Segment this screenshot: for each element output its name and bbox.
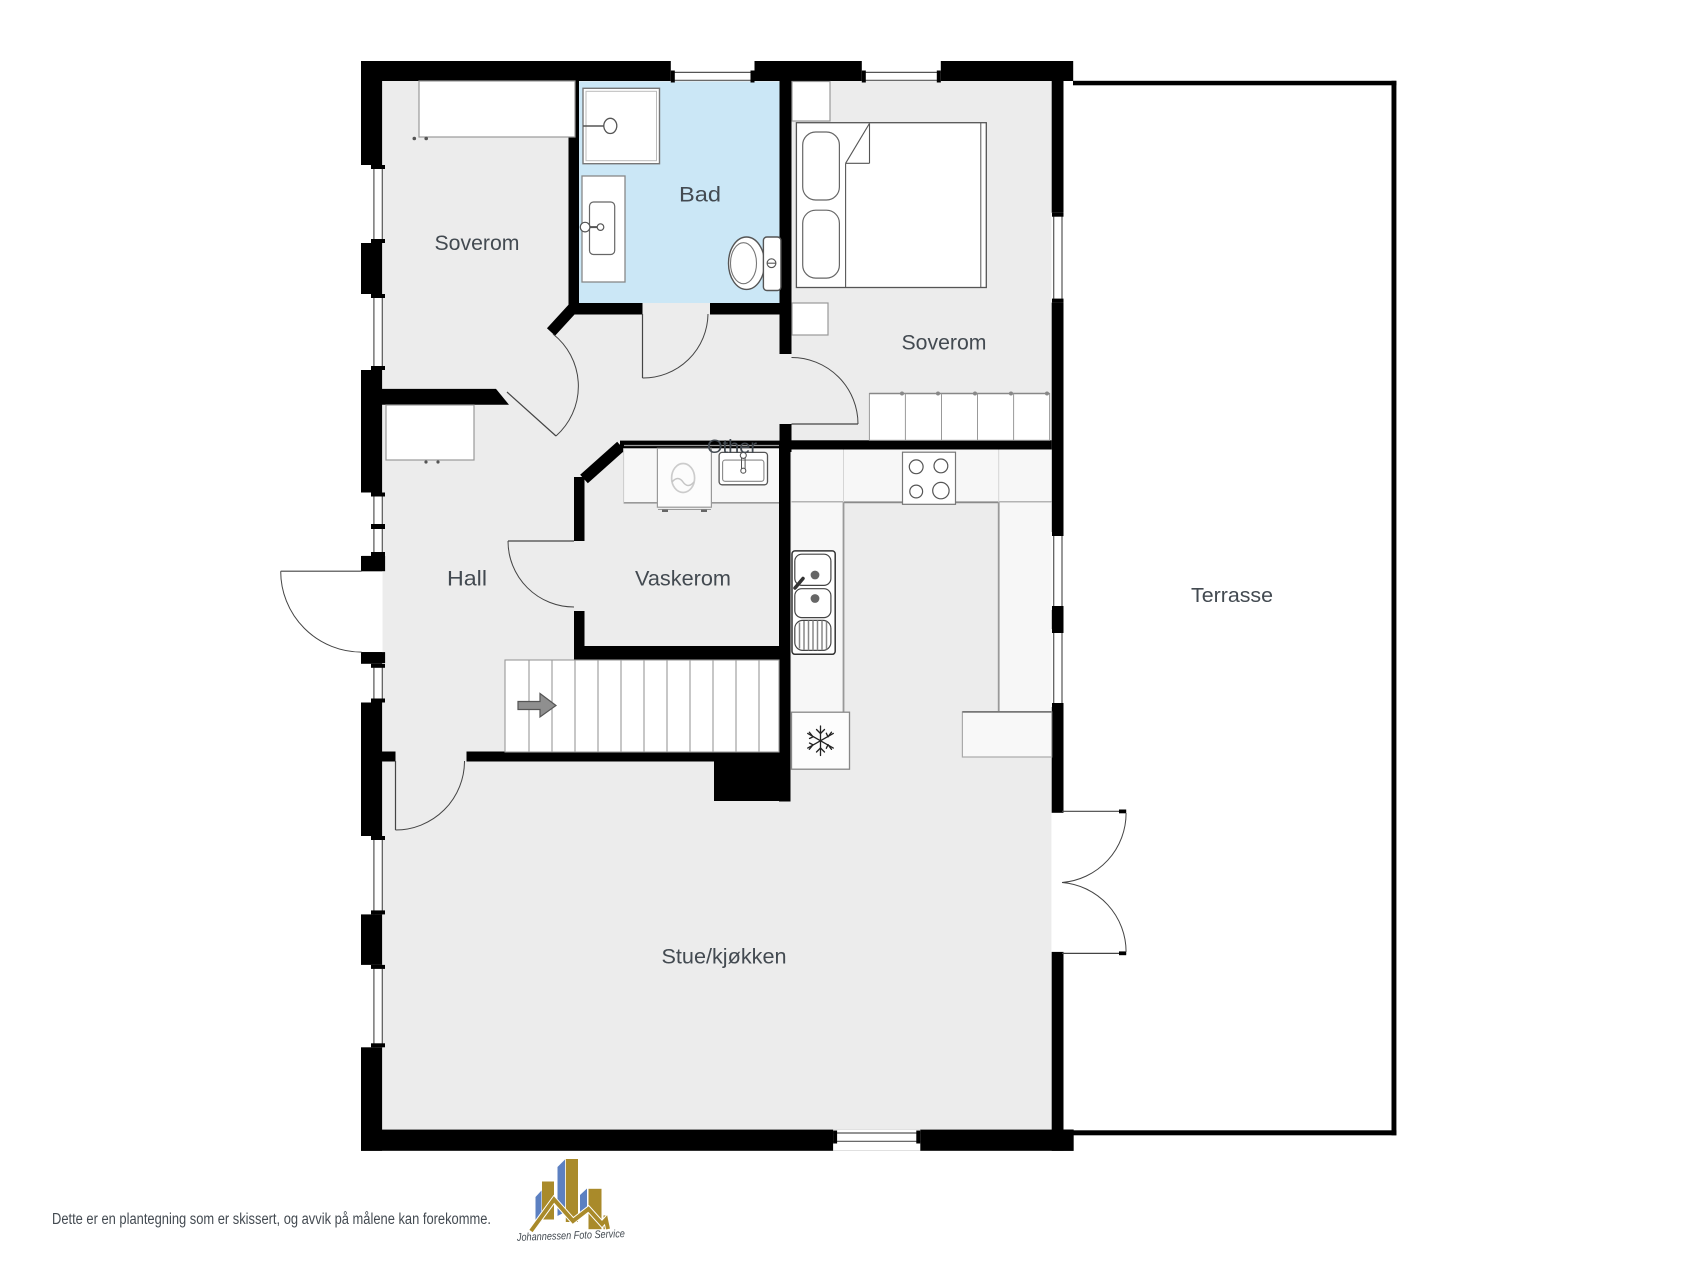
svg-text:Vaskerom: Vaskerom bbox=[635, 567, 731, 591]
svg-text:Other: Other bbox=[707, 437, 758, 458]
svg-text:Soverom: Soverom bbox=[435, 231, 520, 255]
svg-text:Dette er en plantegning som er: Dette er en plantegning som er skissert,… bbox=[52, 1211, 491, 1228]
svg-text:Bad: Bad bbox=[679, 183, 721, 207]
svg-text:Johannessen Foto Service: Johannessen Foto Service bbox=[516, 1228, 625, 1244]
svg-text:Soverom: Soverom bbox=[902, 331, 987, 355]
svg-text:Hall: Hall bbox=[447, 567, 487, 591]
svg-text:Stue/kjøkken: Stue/kjøkken bbox=[662, 945, 787, 969]
svg-text:Terrasse: Terrasse bbox=[1191, 585, 1273, 607]
